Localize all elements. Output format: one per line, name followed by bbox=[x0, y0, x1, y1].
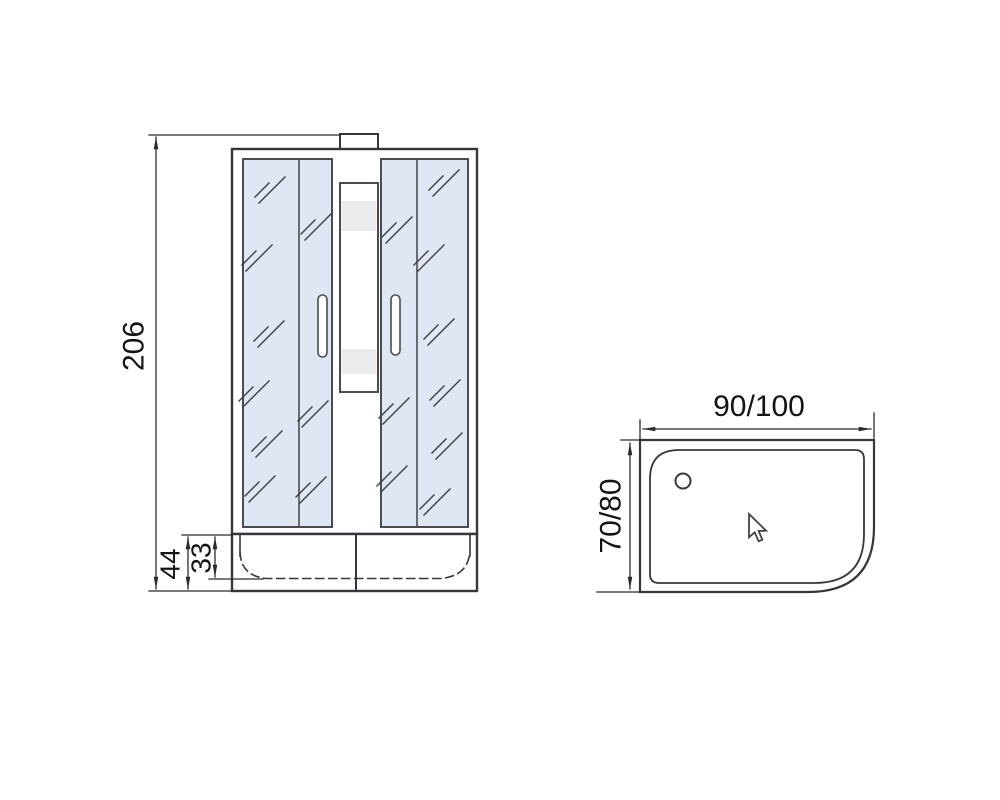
technical-drawing-page: 206 44 33 90/100 bbox=[0, 0, 1000, 800]
drain-hole-icon bbox=[676, 474, 691, 489]
door-handle-right bbox=[391, 295, 400, 355]
tray-plan-view: 90/100 70/80 bbox=[595, 390, 875, 592]
center-column bbox=[340, 183, 378, 392]
tray-inner-rim bbox=[650, 450, 864, 583]
tray-total-height-label: 44 bbox=[155, 548, 186, 579]
shower-tray-front bbox=[232, 534, 477, 591]
tray-width-label: 90/100 bbox=[713, 390, 805, 423]
roof-cap bbox=[340, 134, 378, 150]
door-handle-left bbox=[318, 295, 327, 357]
shower-cabin-drawing: 206 44 33 90/100 bbox=[0, 0, 1000, 800]
tray-inner-depth-label: 33 bbox=[186, 542, 217, 573]
column-band-bottom bbox=[342, 349, 377, 374]
column-band-top bbox=[342, 201, 377, 231]
front-elevation-view: 206 44 33 bbox=[118, 134, 478, 591]
tray-depth-label: 70/80 bbox=[595, 478, 628, 553]
overall-height-label: 206 bbox=[118, 321, 151, 371]
